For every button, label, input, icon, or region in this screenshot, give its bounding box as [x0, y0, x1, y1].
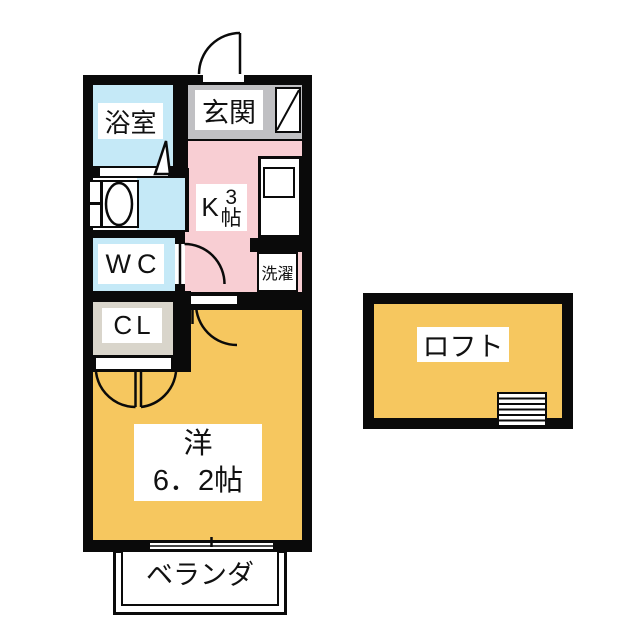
kitchen-label-size: 3	[225, 187, 237, 208]
entrance-label: 玄関	[202, 91, 256, 130]
entrance-door-opening	[203, 75, 244, 82]
bathroom-door-opening	[100, 168, 168, 176]
loft-label: ロフト	[423, 325, 504, 364]
wall-washroom-kitchen	[185, 168, 189, 232]
laundry-label: 洗濯	[261, 260, 293, 284]
washstand-shelf-bottom	[88, 203, 102, 228]
veranda-label-box: ベランダ	[121, 554, 279, 590]
closet-threshold	[93, 355, 174, 372]
wc-label: WC	[106, 249, 163, 280]
loft-ladder	[497, 392, 547, 429]
kitchen-label-unit: 帖	[221, 208, 242, 229]
closet-label-box: CL	[102, 308, 162, 343]
closet-label: CL	[113, 310, 154, 341]
main-room-label: 洋	[183, 426, 212, 462]
room-door-opening	[191, 296, 237, 304]
wall-outer-top	[83, 75, 312, 85]
laundry-space: 洗濯	[257, 252, 298, 292]
main-room-size: 6．2帖	[153, 463, 243, 499]
wall-bath-entrance	[173, 75, 188, 168]
washroom-floor-blue	[137, 178, 186, 230]
kitchen-sink	[263, 167, 295, 198]
wall-washroom-wc	[93, 230, 185, 238]
wall-counter-stub	[250, 238, 302, 252]
entrance-label-box: 玄関	[195, 90, 263, 130]
wall-outer-right	[302, 75, 312, 552]
kitchen-label-box: K 3 帖	[196, 184, 247, 231]
bathroom-label-box: 浴室	[98, 103, 163, 139]
main-room-label-box: 洋 6．2帖	[134, 424, 262, 501]
washbasin-counter	[101, 180, 139, 228]
bathroom-label: 浴室	[104, 103, 156, 140]
wc-label-box: WC	[98, 244, 164, 284]
floor-plan: 洗濯 ロフト 浴室 玄関 K 3 帖 WC CL 洋 6．2帖 ベランダ	[0, 0, 640, 640]
wall-wc-closet	[93, 291, 185, 302]
veranda-label: ベランダ	[146, 553, 254, 592]
shoe-cabinet	[275, 87, 301, 133]
wall-outer-left	[83, 75, 93, 552]
washstand-shelf-top	[88, 180, 102, 204]
entrance-door-swing	[199, 33, 240, 74]
kitchen-label-k: K	[201, 192, 218, 223]
wc-door-opening	[175, 244, 185, 284]
sliding-window	[148, 541, 275, 551]
loft-label-box: ロフト	[417, 327, 509, 362]
